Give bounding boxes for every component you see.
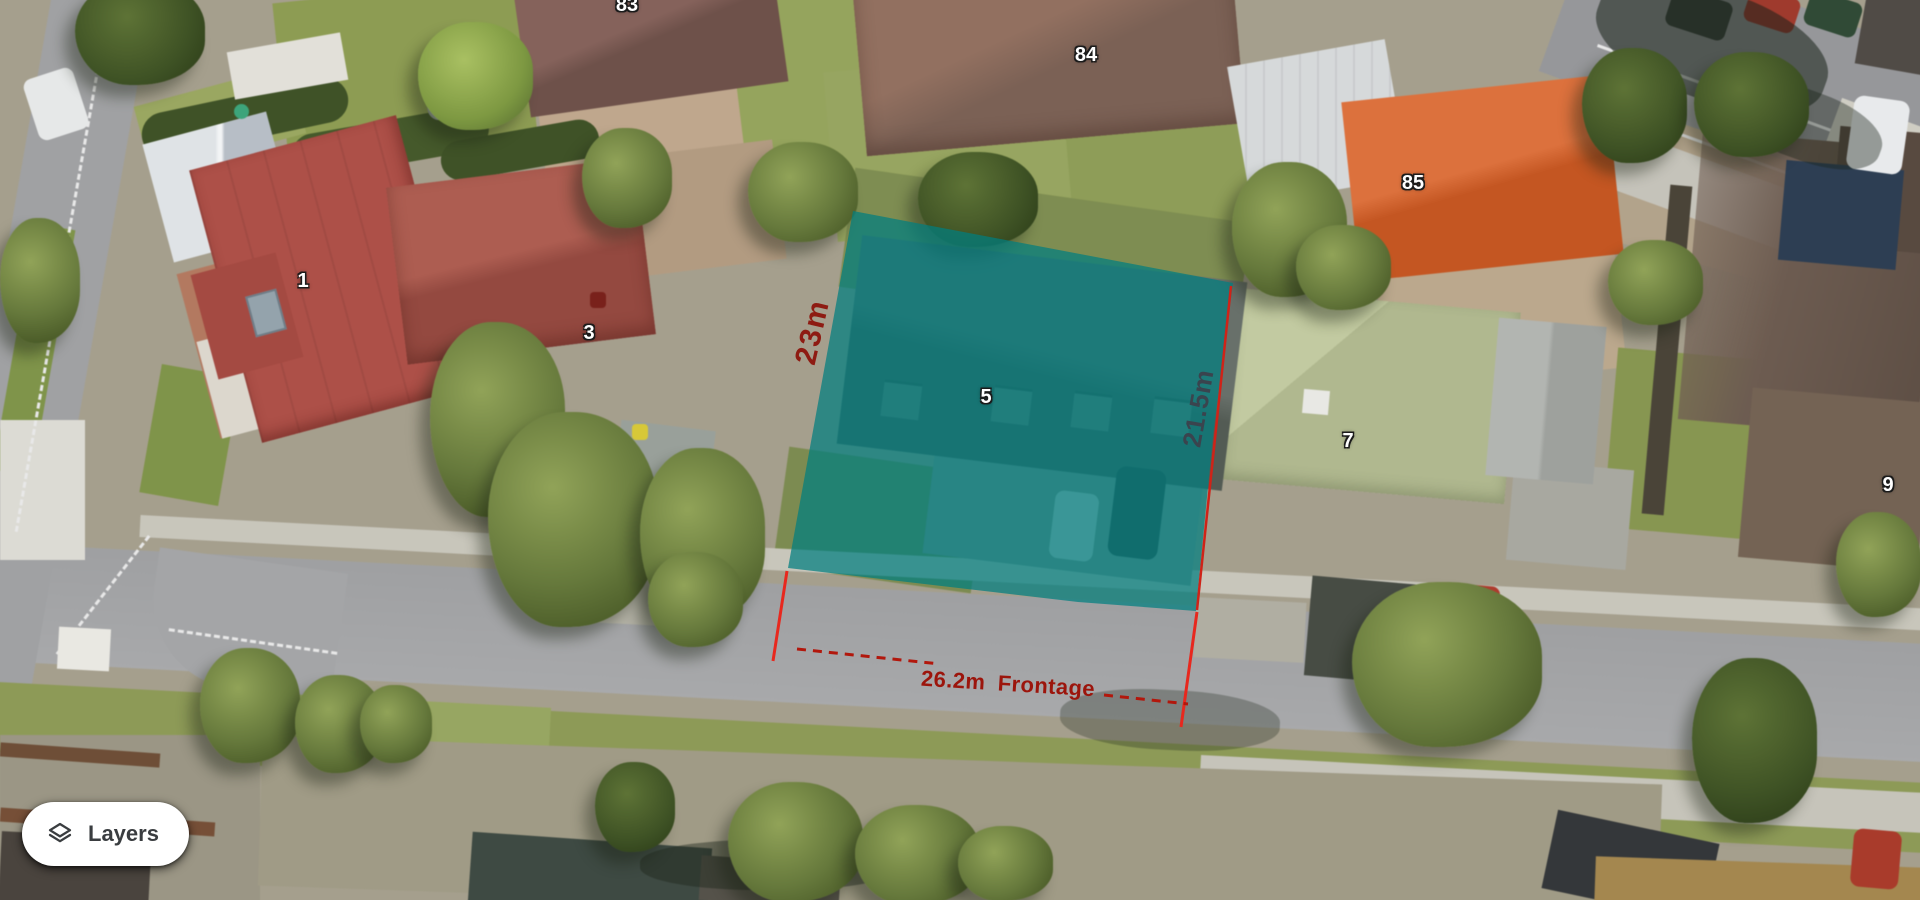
tree	[728, 782, 863, 900]
tree	[1582, 48, 1687, 163]
house-number-label: 5	[980, 386, 991, 409]
solar-panels	[1778, 160, 1904, 270]
tree	[958, 826, 1053, 900]
layers-button-label: Layers	[88, 821, 159, 847]
house-number-label: 83	[616, 0, 638, 17]
tree	[488, 412, 658, 627]
tree	[582, 128, 672, 228]
chimney	[590, 292, 606, 308]
tree	[595, 762, 675, 852]
house-7-vent	[1302, 389, 1330, 415]
tree	[418, 22, 533, 130]
roof	[1855, 0, 1920, 75]
garden-ball	[234, 104, 249, 119]
tree	[200, 648, 300, 763]
bin	[632, 424, 648, 440]
tree	[75, 0, 205, 85]
shed-roof	[1485, 318, 1606, 485]
aerial-map-canvas[interactable]: 23m 21.5m 26.2m Frontage 83848513579 Lay…	[0, 0, 1920, 900]
tree	[1836, 512, 1920, 617]
house-number-label: 7	[1342, 430, 1353, 453]
pavement	[0, 420, 85, 560]
house-number-label: 84	[1075, 44, 1097, 67]
car	[1850, 828, 1903, 890]
tree	[648, 552, 743, 647]
tree	[360, 685, 432, 763]
tree	[1608, 240, 1703, 325]
house-number-label: 3	[583, 322, 594, 345]
house-7-roof	[1220, 288, 1521, 504]
tree	[0, 218, 80, 343]
tree	[748, 142, 858, 242]
house-number-label: 85	[1402, 172, 1424, 195]
tree	[1352, 582, 1542, 747]
shed	[57, 627, 111, 672]
tree	[1694, 52, 1809, 157]
layers-icon	[46, 820, 74, 848]
house-number-label: 1	[297, 270, 308, 293]
layers-button[interactable]: Layers	[22, 802, 189, 866]
house-number-label: 9	[1882, 474, 1893, 497]
tree	[1692, 658, 1817, 823]
driveway	[1194, 597, 1307, 663]
tree	[1296, 225, 1391, 310]
